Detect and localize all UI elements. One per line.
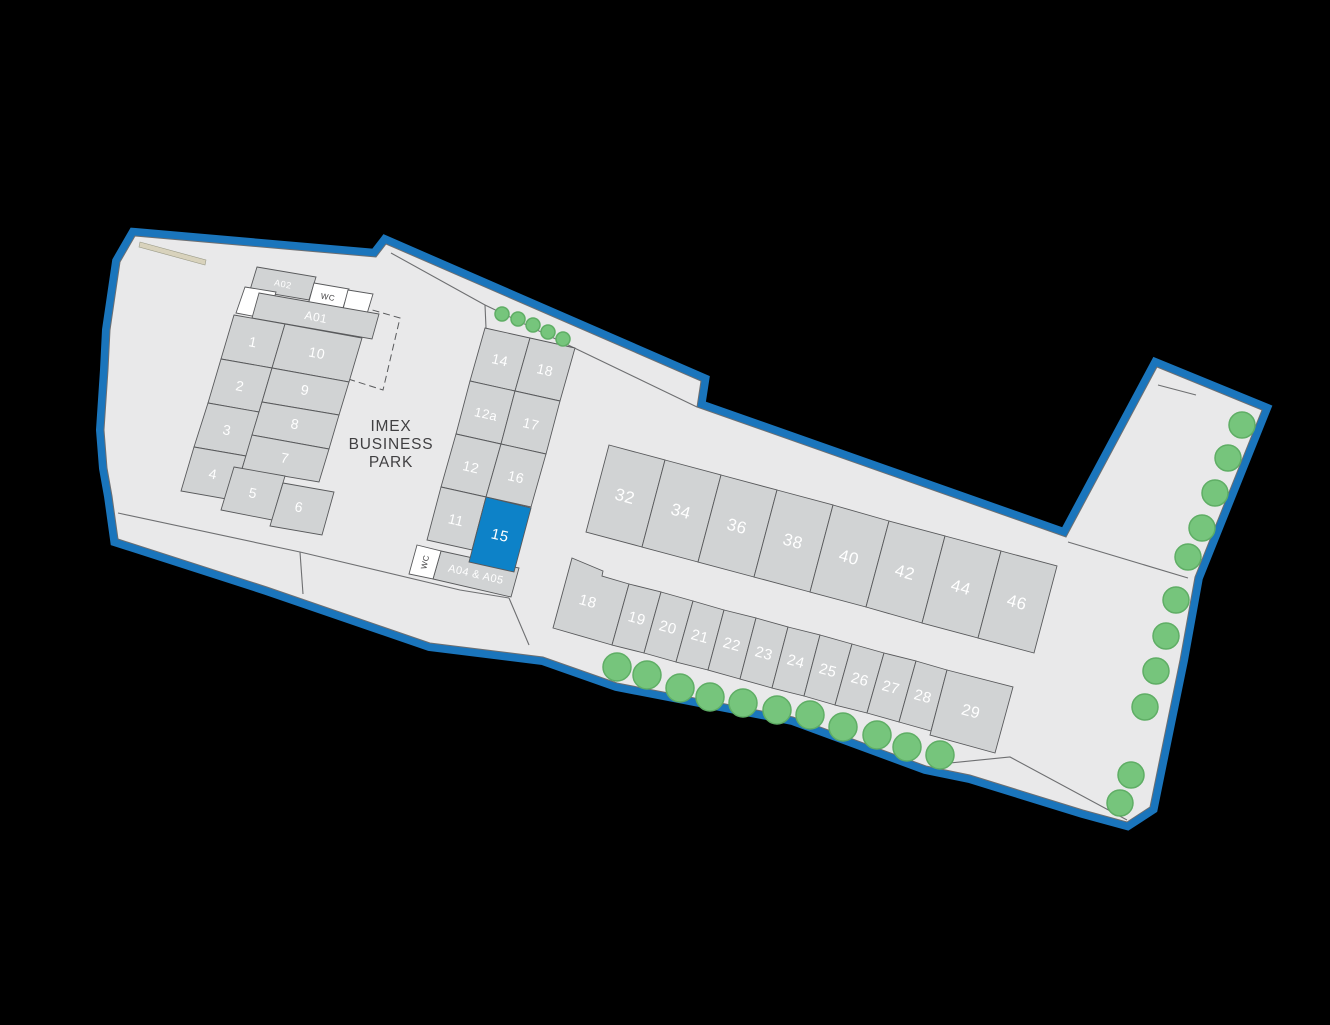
tree-icon xyxy=(893,733,921,761)
tree-icon xyxy=(863,721,891,749)
tree-icon xyxy=(829,713,857,741)
tree-icon xyxy=(1189,515,1215,541)
tree-icon xyxy=(1202,480,1228,506)
tree-icon xyxy=(526,318,540,332)
unit-label-u10: 10 xyxy=(307,343,326,362)
tree-icon xyxy=(633,661,661,689)
tree-icon xyxy=(1163,587,1189,613)
tree-icon xyxy=(796,701,824,729)
tree-icon xyxy=(1132,694,1158,720)
park-title-line-3: PARK xyxy=(369,454,413,471)
site-plan-svg: A02WCA0112341098756141812a17121611A04 & … xyxy=(0,0,1330,1025)
tree-icon xyxy=(666,674,694,702)
tree-icon xyxy=(603,653,631,681)
tree-icon xyxy=(1118,762,1144,788)
tree-icon xyxy=(763,696,791,724)
tree-icon xyxy=(556,332,570,346)
tree-icon xyxy=(1107,790,1133,816)
park-title-line-1: IMEX xyxy=(370,418,411,435)
tree-icon xyxy=(1143,658,1169,684)
site-plan-stage: A02WCA0112341098756141812a17121611A04 & … xyxy=(0,0,1330,1025)
tree-icon xyxy=(1175,544,1201,570)
tree-icon xyxy=(926,741,954,769)
tree-icon xyxy=(1215,445,1241,471)
tree-icon xyxy=(1229,412,1255,438)
tree-icon xyxy=(495,307,509,321)
tree-icon xyxy=(729,689,757,717)
tree-icon xyxy=(1153,623,1179,649)
tree-icon xyxy=(541,325,555,339)
tree-icon xyxy=(511,312,525,326)
tree-icon xyxy=(696,683,724,711)
park-title-line-2: BUSINESS xyxy=(349,436,434,453)
